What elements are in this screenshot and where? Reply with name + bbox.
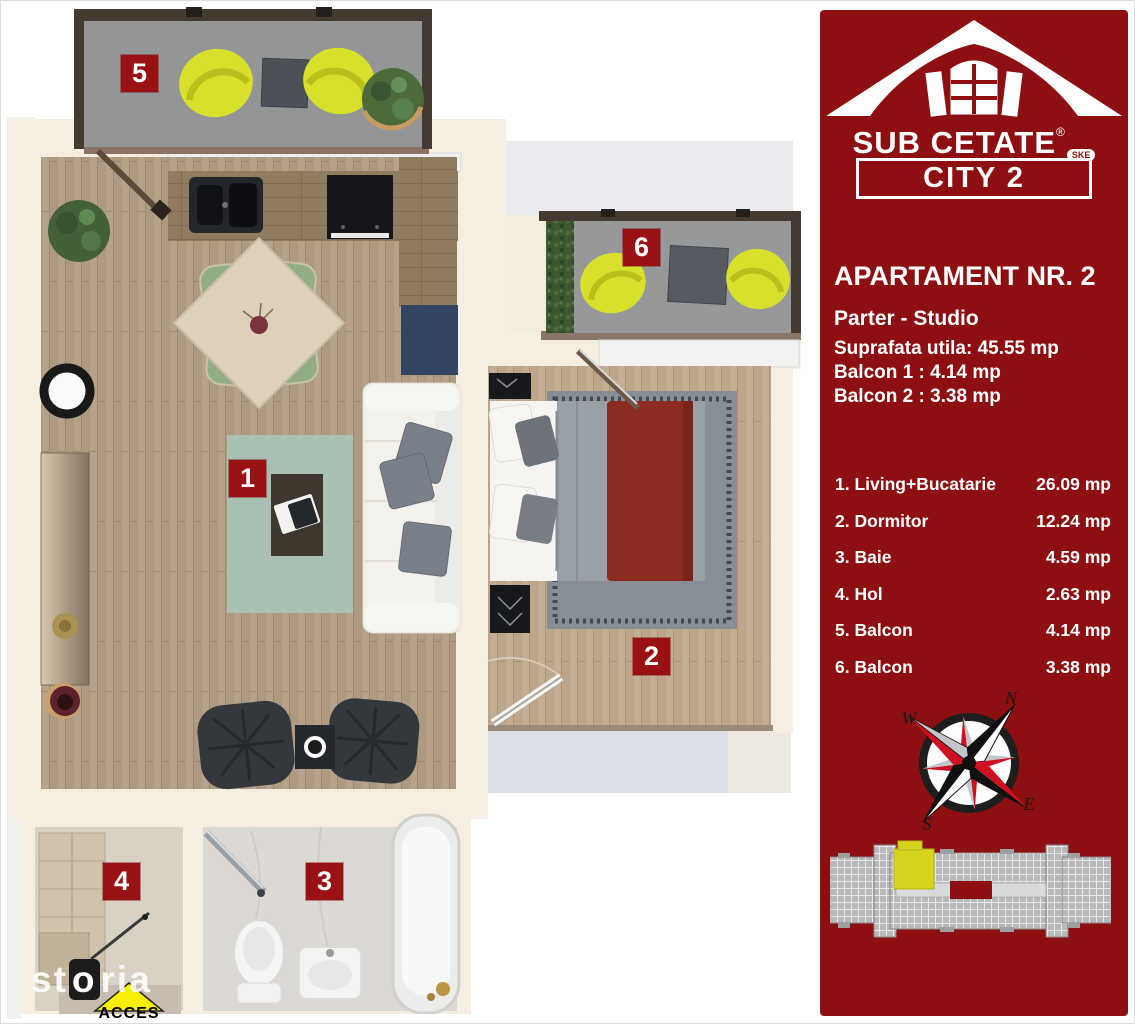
compass-e: E: [1023, 794, 1035, 814]
bed: [488, 401, 705, 581]
armchair-left: [195, 698, 297, 791]
armchair-side-table: [295, 725, 335, 769]
apartment-title: APARTAMENT NR. 2: [834, 261, 1096, 292]
brass-decor: [52, 613, 78, 639]
brand-row: SUB CETATE®SKE: [820, 125, 1128, 161]
balcony2-area: Balcon 2 : 3.38 mp: [834, 385, 1059, 409]
brand-name: SUB CETATE: [853, 125, 1056, 160]
room-badge-hol: 4: [103, 863, 140, 900]
room-badge-balcon5: 5: [121, 55, 158, 92]
info-sidebar: SUB CETATE®SKE CITY 2 APARTAMENT NR. 2 P…: [820, 10, 1128, 1016]
armchair-right: [325, 696, 422, 786]
room-legend: 1. Living+Bucatarie26.09 mp 2. Dormitor1…: [835, 474, 1111, 693]
usable-area: Suprafata utila: 45.55 mp: [834, 337, 1059, 361]
compass-w: W: [902, 708, 919, 728]
kitchen-cooktop: [327, 175, 393, 239]
balcony6-door-sill: [599, 340, 799, 367]
balcony6-table: [668, 246, 729, 305]
compass-rose: N E S W: [884, 678, 1054, 848]
vase: [45, 683, 81, 719]
room-badge-balcon6: 6: [623, 229, 660, 266]
balcony5-plant: [362, 68, 424, 130]
bedroom: [488, 350, 773, 731]
bathroom-sink: [299, 947, 361, 999]
apartment-areas: Suprafata utila: 45.55 mp Balcon 1 : 4.1…: [834, 337, 1059, 409]
registered-mark: ®: [1056, 125, 1065, 139]
compass-s: S: [923, 814, 932, 834]
bedroom-window-sill: [488, 725, 773, 731]
bathroom: [203, 815, 459, 1013]
background-patch-top: [499, 141, 793, 215]
bed-throw: [607, 401, 693, 581]
room-badge-dormitor: 2: [633, 638, 670, 675]
round-side-table: [44, 368, 90, 414]
legend-row: 4. Hol2.63 mp: [835, 584, 1111, 621]
living-plant: [48, 200, 110, 262]
building-keyplan: [830, 839, 1111, 942]
nightstand-bottom: [490, 585, 530, 633]
living-cabinet: [401, 305, 458, 375]
storia-watermark: storia: [31, 959, 152, 1001]
bathtub: [393, 815, 459, 1013]
balcony5-table: [261, 58, 309, 108]
balcony6-hedge: [546, 221, 574, 333]
toilet: [234, 920, 284, 1003]
legend-row: 5. Balcon4.14 mp: [835, 620, 1111, 657]
project-name-box: CITY 2: [856, 158, 1092, 199]
sideboard: [41, 453, 89, 685]
background-patch-bottom: [488, 731, 728, 793]
apartment-plan-page: 1 2 3 4 5 6 storia ACCES SUB CETATE®SKE …: [0, 0, 1135, 1024]
compass-n: N: [1004, 688, 1018, 708]
keyplan-highlighted-unit: [894, 849, 934, 889]
kitchen-sink: [189, 177, 263, 233]
window-icon: [925, 59, 1022, 117]
balcony-6: [539, 209, 801, 333]
subcetate-logo: [824, 16, 1124, 128]
legend-row: 1. Living+Bucatarie26.09 mp: [835, 474, 1111, 511]
kitchen-column: [399, 157, 457, 307]
sofa: [363, 383, 461, 633]
room-badge-baie: 3: [306, 863, 343, 900]
balcony1-area: Balcon 1 : 4.14 mp: [834, 361, 1059, 385]
legend-row: 3. Baie4.59 mp: [835, 547, 1111, 584]
access-label: ACCES: [91, 1005, 167, 1023]
room-badge-living: 1: [229, 460, 266, 497]
apartment-floor-type: Parter - Studio: [834, 307, 979, 331]
coffee-table: [271, 474, 323, 556]
legend-row: 2. Dormitor12.24 mp: [835, 511, 1111, 548]
nightstand-top: [489, 373, 531, 399]
keyplan-gap: [950, 881, 992, 899]
